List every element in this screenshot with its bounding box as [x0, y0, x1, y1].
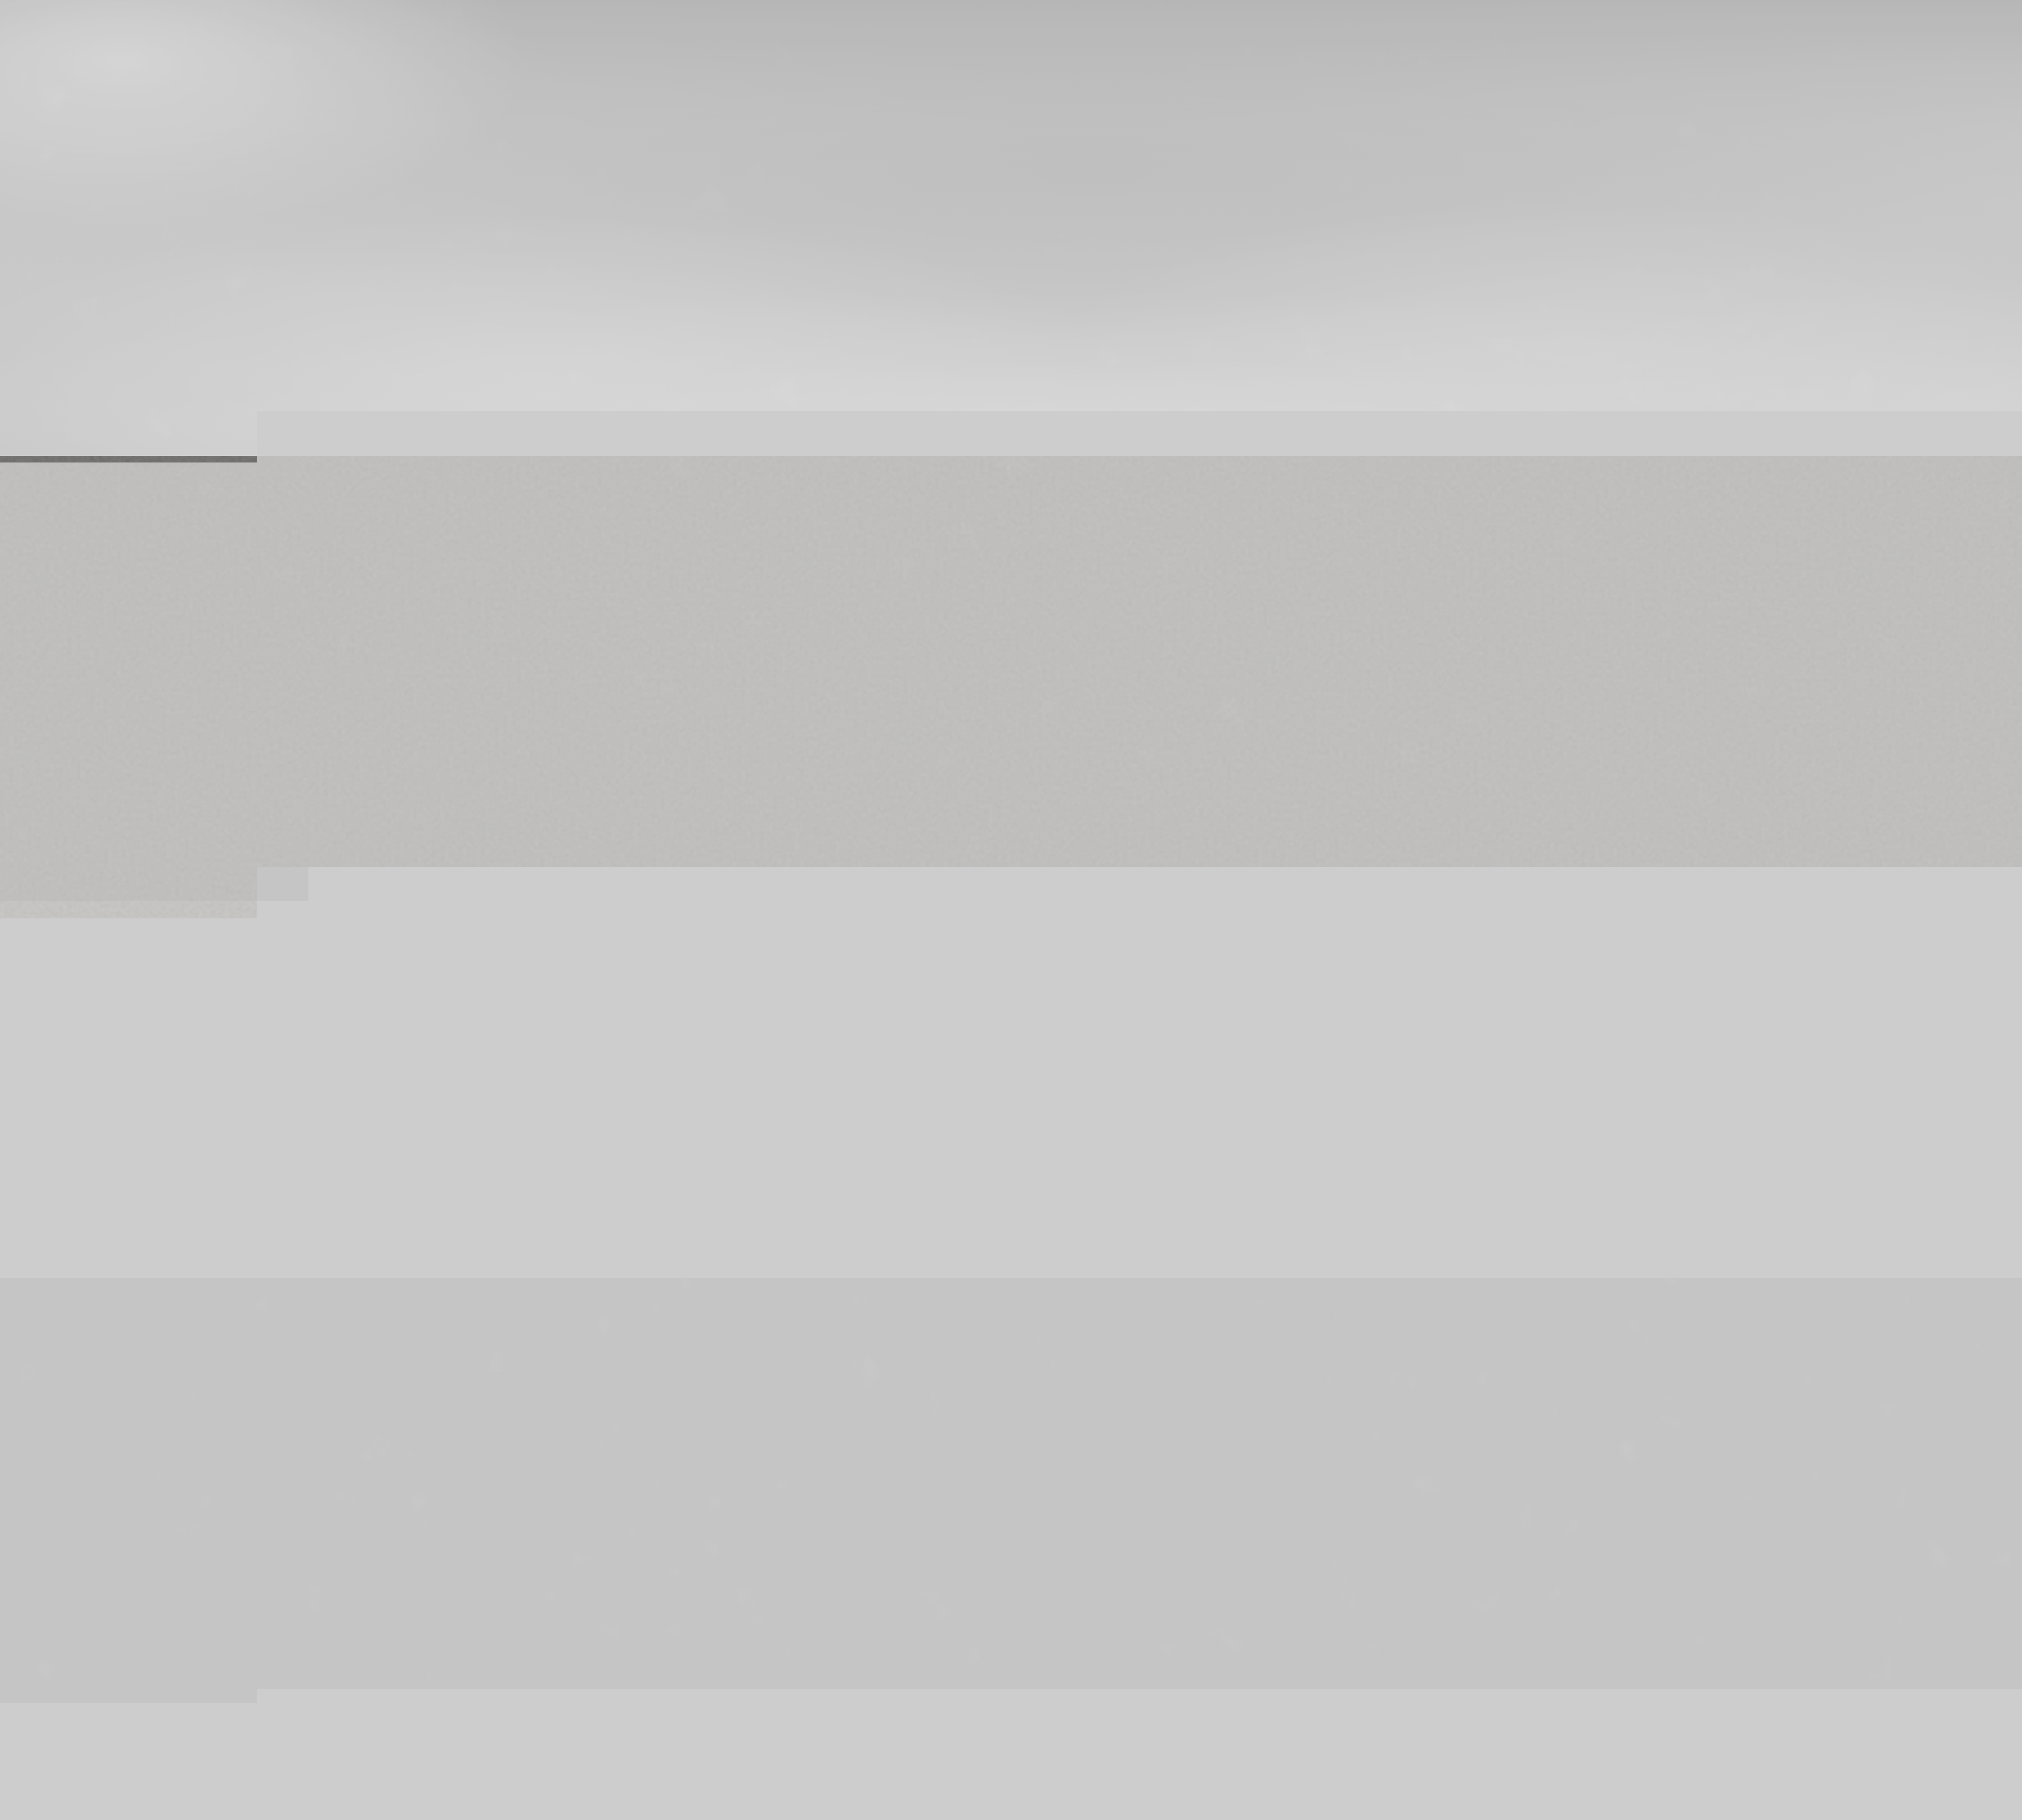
svg-text:1200: 1200: [700, 1106, 717, 1115]
svg-text:5: 5: [1170, 271, 1173, 277]
svg-text:1200: 1200: [1773, 1106, 1790, 1115]
svg-text:8: 8: [1673, 1093, 1676, 1100]
svg-text:4: 4: [1277, 271, 1281, 277]
svg-text:6: 6: [1243, 1093, 1247, 1100]
svg-text:7: 7: [847, 271, 851, 277]
svg-text:1200: 1200: [1558, 1106, 1575, 1115]
svg-text:3: 3: [1491, 271, 1494, 277]
svg-text:1200: 1200: [518, 286, 535, 294]
svg-text:5: 5: [1136, 1093, 1139, 1100]
svg-text:600: 600: [1184, 1106, 1197, 1115]
svg-text:2: 2: [600, 1093, 603, 1100]
svg-text:1200: 1200: [486, 1106, 503, 1115]
svg-text:4: 4: [1029, 1093, 1032, 1100]
svg-text:600: 600: [1077, 1106, 1090, 1115]
svg-text:1200: 1200: [732, 286, 749, 294]
svg-text:1200: 1200: [1591, 286, 1607, 294]
svg-text:1: 1: [1918, 271, 1922, 277]
svg-text:Coupe BB: Coupe BB: [1892, 1301, 2013, 1329]
svg-text:1: 1: [386, 1093, 390, 1100]
svg-text:1200: 1200: [1377, 286, 1394, 294]
svg-text:600: 600: [1110, 286, 1123, 294]
svg-text:Coupe AA: Coupe AA: [1892, 488, 2012, 516]
svg-text:600: 600: [1219, 286, 1232, 294]
svg-text:2: 2: [1705, 271, 1708, 277]
svg-text:1200: 1200: [947, 286, 964, 294]
svg-text:1200: 1200: [1343, 1106, 1360, 1115]
svg-text:1200: 1200: [1804, 286, 1821, 294]
svg-text:3: 3: [814, 1093, 818, 1100]
svg-text:1200: 1200: [914, 1106, 931, 1115]
svg-text:9: 9: [418, 271, 421, 277]
svg-text:9: 9: [1887, 1093, 1891, 1100]
svg-text:7: 7: [1458, 1093, 1462, 1100]
svg-text:8: 8: [632, 271, 635, 277]
svg-text:6: 6: [1061, 271, 1064, 277]
